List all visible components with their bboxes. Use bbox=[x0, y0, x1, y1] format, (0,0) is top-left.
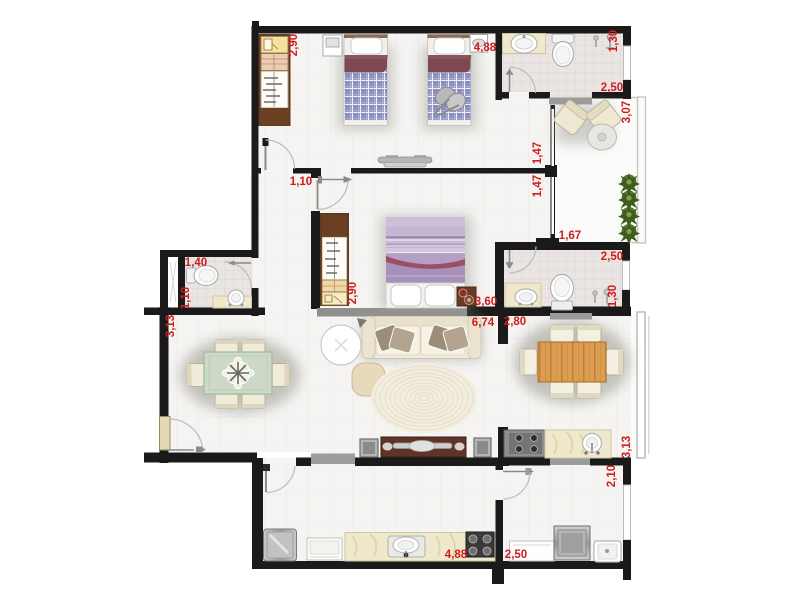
svg-text:3,07: 3,07 bbox=[621, 101, 633, 123]
svg-text:2,90: 2,90 bbox=[288, 34, 300, 56]
svg-text:3,13: 3,13 bbox=[621, 436, 633, 458]
svg-text:1,67: 1,67 bbox=[559, 230, 581, 242]
svg-text:4,88: 4,88 bbox=[474, 42, 497, 54]
svg-text:1,47: 1,47 bbox=[532, 142, 544, 164]
svg-text:1,30: 1,30 bbox=[607, 285, 619, 307]
svg-text:2,90: 2,90 bbox=[347, 282, 359, 304]
svg-text:6,74: 6,74 bbox=[472, 317, 495, 329]
svg-text:1,47: 1,47 bbox=[532, 175, 544, 197]
svg-text:1,30: 1,30 bbox=[608, 30, 620, 52]
svg-text:4,88: 4,88 bbox=[445, 549, 468, 561]
svg-text:1,10: 1,10 bbox=[290, 176, 312, 188]
svg-text:3,13: 3,13 bbox=[165, 315, 177, 337]
svg-text:2,50: 2,50 bbox=[601, 82, 623, 94]
svg-text:2,10: 2,10 bbox=[606, 465, 618, 487]
svg-text:1,10: 1,10 bbox=[180, 287, 192, 309]
svg-text:2,50: 2,50 bbox=[505, 549, 527, 561]
svg-text:1,40: 1,40 bbox=[185, 257, 207, 269]
svg-text:2,80: 2,80 bbox=[504, 316, 526, 328]
svg-text:3,60: 3,60 bbox=[475, 296, 497, 308]
svg-text:2,50: 2,50 bbox=[601, 251, 623, 263]
